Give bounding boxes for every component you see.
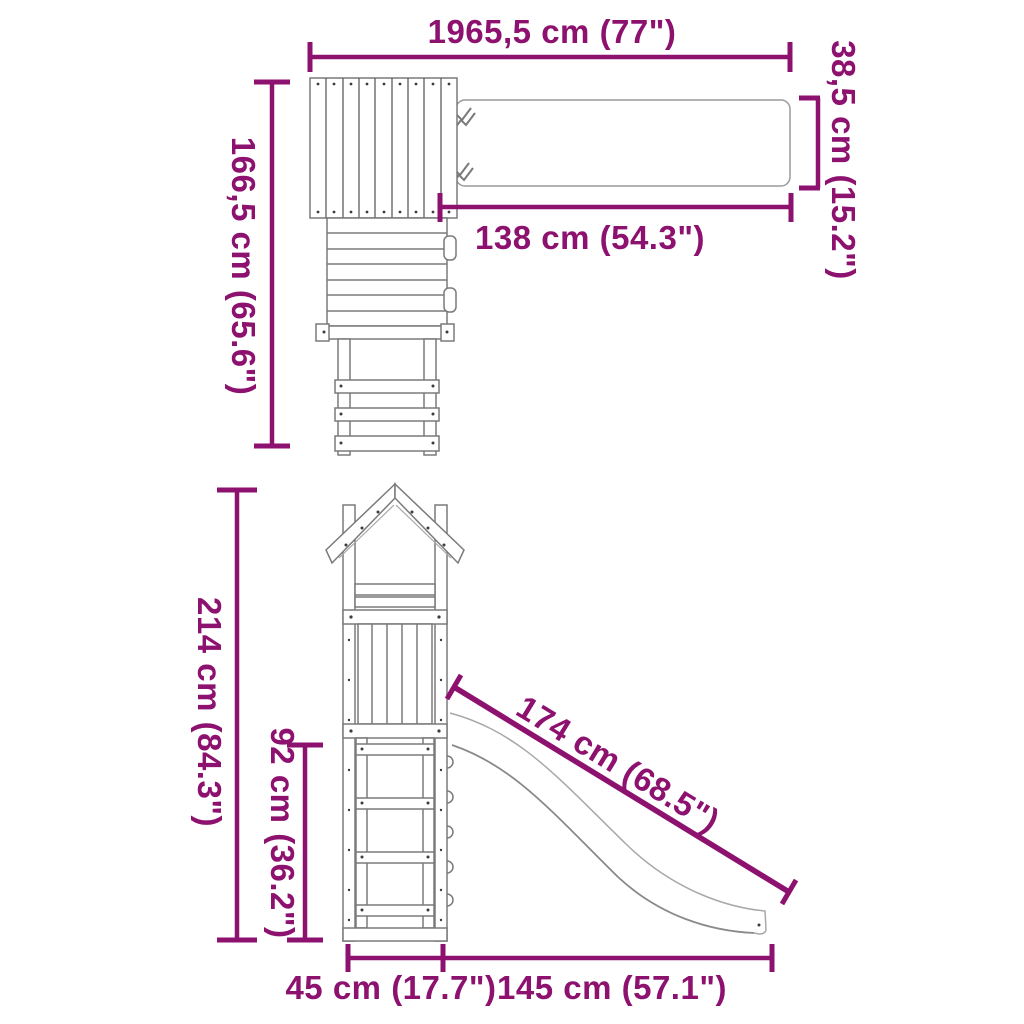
wall-handle-icon (444, 288, 456, 312)
platform-floor (343, 724, 447, 738)
dim-beam-length (440, 193, 791, 222)
plan-wall-panel (327, 218, 456, 326)
dimension-diagram: 1965,5 cm (77") 166,5 cm (65.6") 38,5 cm… (0, 0, 1024, 1024)
platform-height-label: 92 cm (36.2") (263, 727, 301, 938)
dim-base-run (348, 944, 772, 972)
wall-handle-icon (444, 236, 456, 260)
post-hooks (447, 756, 453, 906)
plan-swing-beam (446, 100, 790, 187)
beam-length-label: 138 cm (54.3") (475, 219, 705, 257)
plan-ladder (316, 324, 454, 455)
ladder (343, 738, 447, 941)
overall-depth-label: 166,5 cm (65.6") (224, 137, 262, 395)
base-depth-label: 45 cm (17.7") (285, 969, 496, 1007)
dim-beam-width (799, 98, 820, 188)
playset-line-drawing (0, 0, 1024, 1024)
plan-roof (310, 78, 457, 218)
overall-width-label: 1965,5 cm (77") (428, 13, 677, 51)
plan-view (310, 78, 790, 455)
dim-slide-length (447, 675, 796, 904)
slide-run-label: 145 cm (57.1") (497, 969, 727, 1007)
railing (343, 584, 447, 724)
beam-width-label: 38,5 cm (15.2") (824, 40, 862, 280)
overall-height-label: 214 cm (84.3") (190, 597, 228, 827)
